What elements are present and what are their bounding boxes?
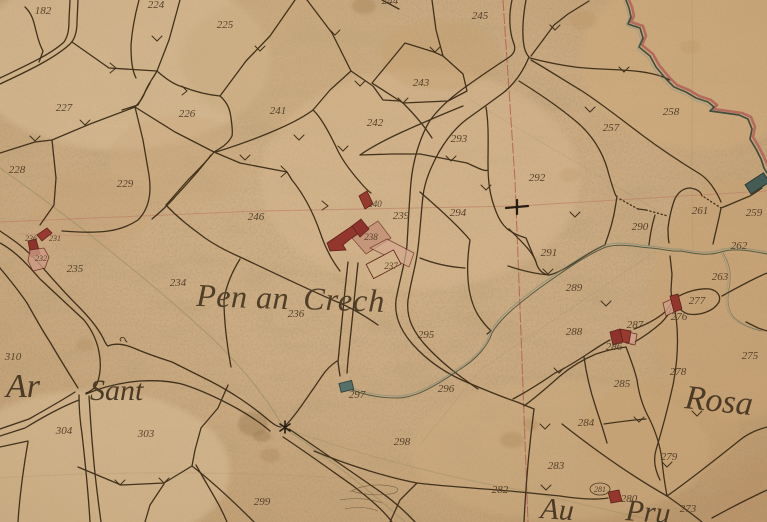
svg-text:279: 279: [661, 451, 678, 463]
svg-text:257: 257: [603, 122, 620, 134]
svg-text:296: 296: [438, 383, 455, 395]
svg-text:238: 238: [364, 232, 378, 242]
svg-text:287: 287: [627, 319, 644, 331]
svg-text:263: 263: [712, 271, 729, 283]
svg-text:236: 236: [25, 234, 37, 243]
svg-text:286: 286: [606, 341, 623, 353]
svg-text:259: 259: [746, 207, 763, 219]
svg-text:292: 292: [529, 172, 546, 184]
svg-text:277: 277: [689, 295, 706, 307]
svg-text:Sant: Sant: [90, 374, 144, 407]
svg-text:234: 234: [170, 277, 187, 289]
svg-text:293: 293: [451, 133, 468, 145]
svg-text:276: 276: [671, 311, 688, 323]
svg-text:273: 273: [680, 503, 697, 515]
svg-text:245: 245: [472, 10, 489, 22]
svg-text:290: 290: [632, 221, 649, 233]
svg-text:Pru: Pru: [624, 494, 672, 522]
svg-text:304: 304: [55, 425, 73, 437]
svg-text:225: 225: [217, 19, 234, 31]
svg-text:231: 231: [49, 234, 61, 243]
svg-text:235: 235: [67, 263, 84, 275]
svg-text:244: 244: [382, 0, 399, 7]
svg-text:282: 282: [492, 484, 509, 496]
svg-text:227: 227: [56, 102, 73, 114]
svg-text:226: 226: [179, 108, 196, 120]
svg-text:281: 281: [594, 485, 606, 494]
svg-text:294: 294: [450, 207, 467, 219]
svg-text:242: 242: [367, 117, 384, 129]
svg-text:246: 246: [248, 211, 265, 223]
svg-text:Pen an: Pen an: [195, 277, 290, 316]
svg-text:291: 291: [541, 247, 558, 259]
svg-text:Rosa: Rosa: [682, 379, 754, 423]
svg-text:283: 283: [548, 460, 565, 472]
svg-text:289: 289: [566, 282, 583, 294]
svg-text:239: 239: [393, 210, 410, 222]
svg-text:Ar: Ar: [4, 368, 41, 405]
svg-text:262: 262: [731, 240, 748, 252]
svg-text:278: 278: [670, 366, 687, 378]
svg-text:241: 241: [270, 105, 287, 117]
svg-text:224: 224: [148, 0, 165, 11]
svg-text:299: 299: [254, 496, 271, 508]
svg-text:275: 275: [742, 350, 759, 362]
svg-text:240: 240: [368, 199, 382, 209]
svg-text:298: 298: [394, 436, 411, 448]
svg-text:285: 285: [614, 378, 631, 390]
svg-text:232: 232: [35, 254, 47, 263]
svg-text:310: 310: [4, 351, 22, 363]
svg-text:243: 243: [413, 77, 430, 89]
svg-text:295: 295: [418, 329, 435, 341]
svg-text:228: 228: [9, 164, 26, 176]
svg-text:303: 303: [137, 428, 155, 440]
svg-text:284: 284: [578, 417, 595, 429]
svg-text:237: 237: [384, 261, 398, 271]
svg-text:261: 261: [692, 205, 709, 217]
svg-text:288: 288: [566, 326, 583, 338]
svg-text:Crech: Crech: [303, 280, 386, 319]
svg-text:Au: Au: [538, 492, 576, 522]
svg-text:297: 297: [349, 389, 366, 401]
svg-text:182: 182: [35, 5, 52, 17]
svg-text:258: 258: [663, 106, 680, 118]
svg-text:229: 229: [117, 178, 134, 190]
